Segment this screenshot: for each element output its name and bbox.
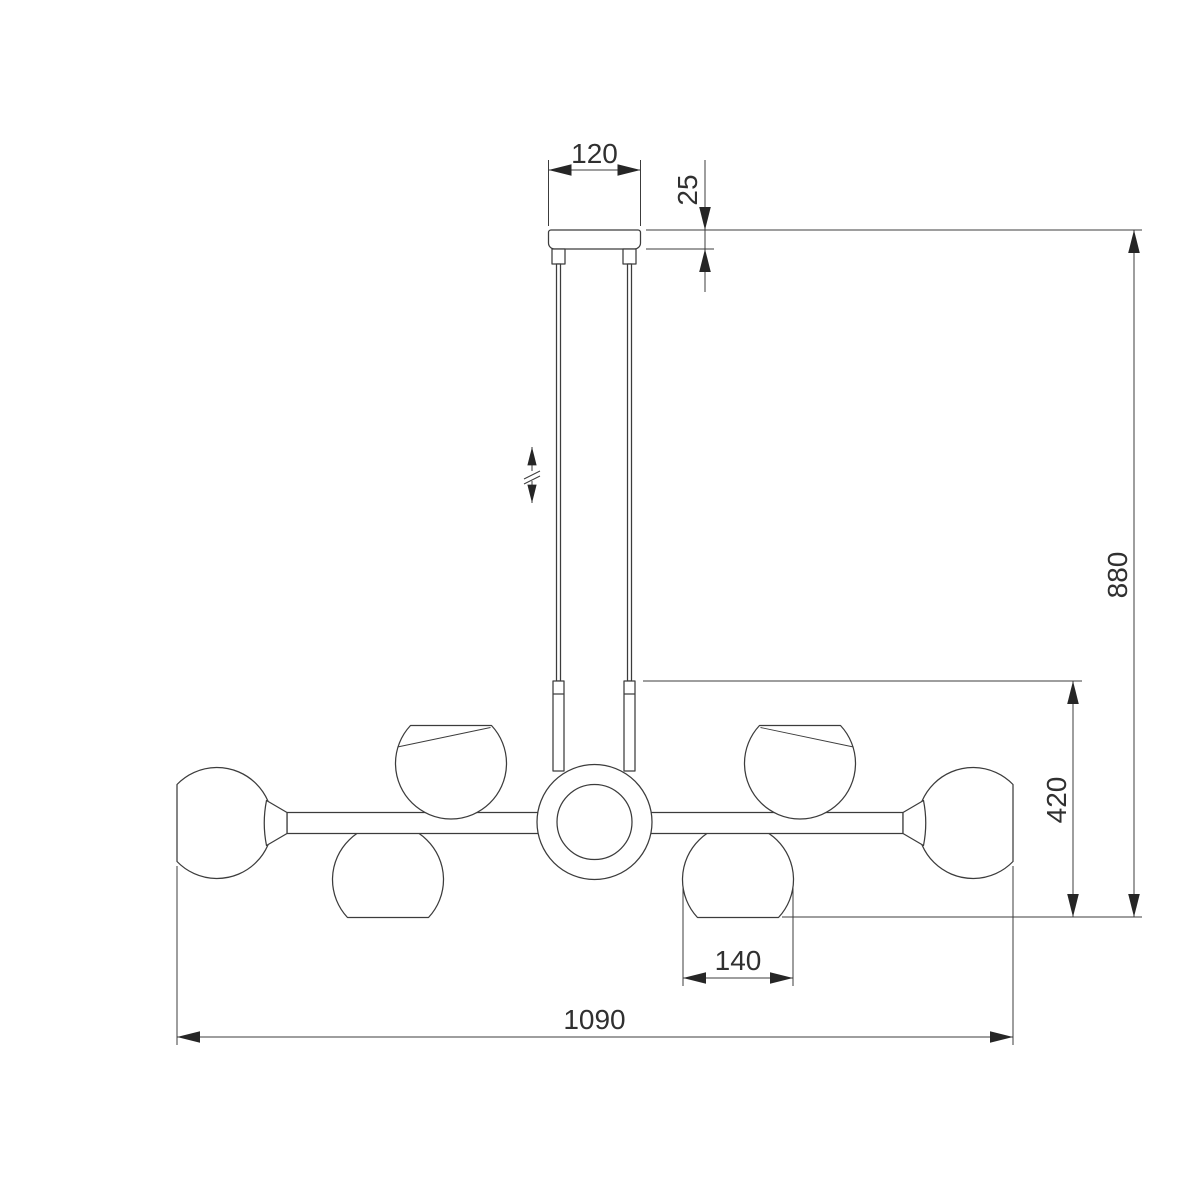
mount-connector-right xyxy=(623,249,636,264)
arrowhead xyxy=(1067,681,1079,704)
shade-end-right xyxy=(918,768,1013,879)
shade-top-left xyxy=(396,726,507,819)
arrowhead xyxy=(990,1031,1013,1043)
center-hub-outer xyxy=(537,765,652,880)
dim-overall-width: 1090 xyxy=(177,866,1013,1045)
suspension-cable-left xyxy=(557,264,561,681)
dim-overall-width-label: 1090 xyxy=(563,1004,625,1035)
arrowhead xyxy=(1128,894,1140,917)
dim-overall-height-label: 880 xyxy=(1102,552,1133,599)
arrowhead xyxy=(549,164,572,176)
dim-canopy-width: 120 xyxy=(549,138,641,226)
dim-canopy-height: 25 xyxy=(646,160,714,292)
arrowhead xyxy=(699,249,711,272)
dim-shade-width-label: 140 xyxy=(715,945,762,976)
arrowhead xyxy=(699,207,711,230)
shade-bottom-right xyxy=(683,824,794,917)
socket-cup-left xyxy=(264,801,287,846)
dim-canopy-height-label: 25 xyxy=(672,174,703,205)
suspension-cable-right xyxy=(628,264,632,681)
shade-bottom-left xyxy=(333,824,444,917)
chandelier-dimension-drawing: 120 25 880 420 140 xyxy=(0,0,1200,1200)
socket-cup-right xyxy=(903,801,926,846)
arrowhead xyxy=(683,972,706,984)
shade-end-left xyxy=(177,768,272,879)
arrowhead xyxy=(527,485,536,503)
arrowhead xyxy=(618,164,641,176)
arrowhead xyxy=(177,1031,200,1043)
ceiling-canopy xyxy=(549,230,641,249)
arrowhead xyxy=(527,447,536,465)
arrowhead xyxy=(1067,894,1079,917)
dim-body-height-label: 420 xyxy=(1041,777,1072,824)
mount-connector-left xyxy=(552,249,565,264)
arrowhead xyxy=(1128,230,1140,253)
adjustable-height-icon xyxy=(524,447,540,503)
shade-top-right xyxy=(745,726,856,819)
dim-canopy-width-label: 120 xyxy=(571,138,618,169)
arrowhead xyxy=(770,972,793,984)
